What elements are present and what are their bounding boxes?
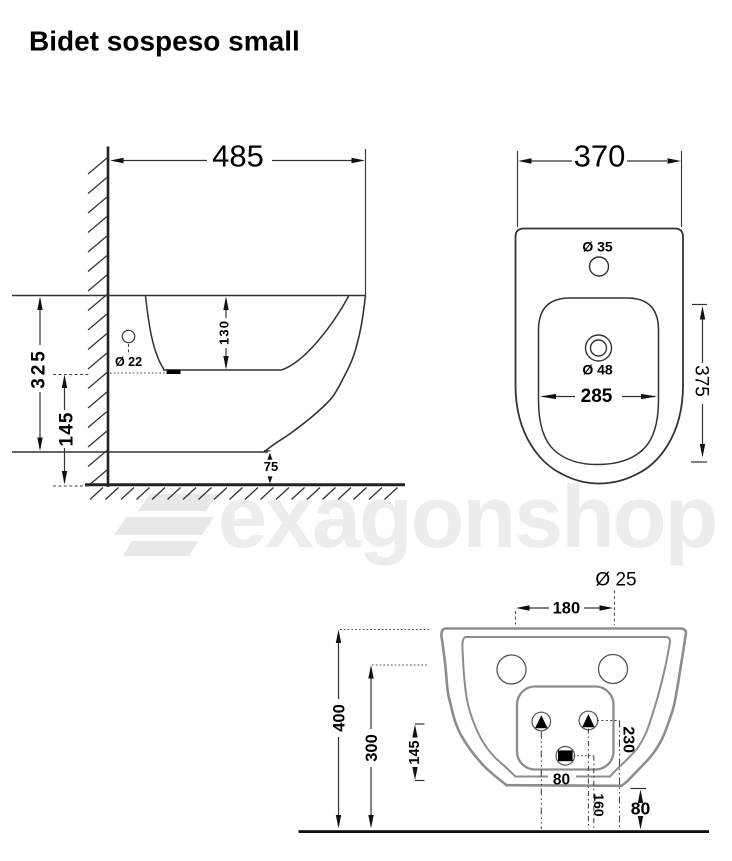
svg-text:285: 285: [581, 386, 613, 407]
svg-text:160: 160: [591, 793, 607, 817]
svg-text:145: 145: [407, 740, 423, 764]
svg-text:exagonshop: exagonshop: [218, 467, 716, 566]
svg-text:Ø 25: Ø 25: [595, 570, 636, 591]
svg-text:75: 75: [264, 459, 278, 474]
svg-text:230: 230: [619, 726, 636, 753]
svg-text:Ø 48: Ø 48: [582, 362, 613, 378]
svg-text:300: 300: [363, 734, 381, 762]
svg-text:485: 485: [212, 139, 264, 174]
svg-text:130: 130: [216, 321, 231, 345]
svg-text:400: 400: [330, 704, 348, 732]
svg-text:370: 370: [574, 139, 626, 174]
svg-text:325: 325: [29, 351, 50, 389]
svg-text:180: 180: [553, 600, 581, 618]
svg-text:375: 375: [690, 365, 711, 397]
svg-text:80: 80: [553, 772, 570, 789]
svg-text:Ø 22: Ø 22: [115, 355, 142, 369]
svg-text:Ø 35: Ø 35: [582, 239, 613, 255]
svg-text:80: 80: [631, 799, 651, 819]
svg-text:145: 145: [56, 412, 77, 446]
svg-text:Bidet sospeso small: Bidet sospeso small: [29, 26, 300, 57]
